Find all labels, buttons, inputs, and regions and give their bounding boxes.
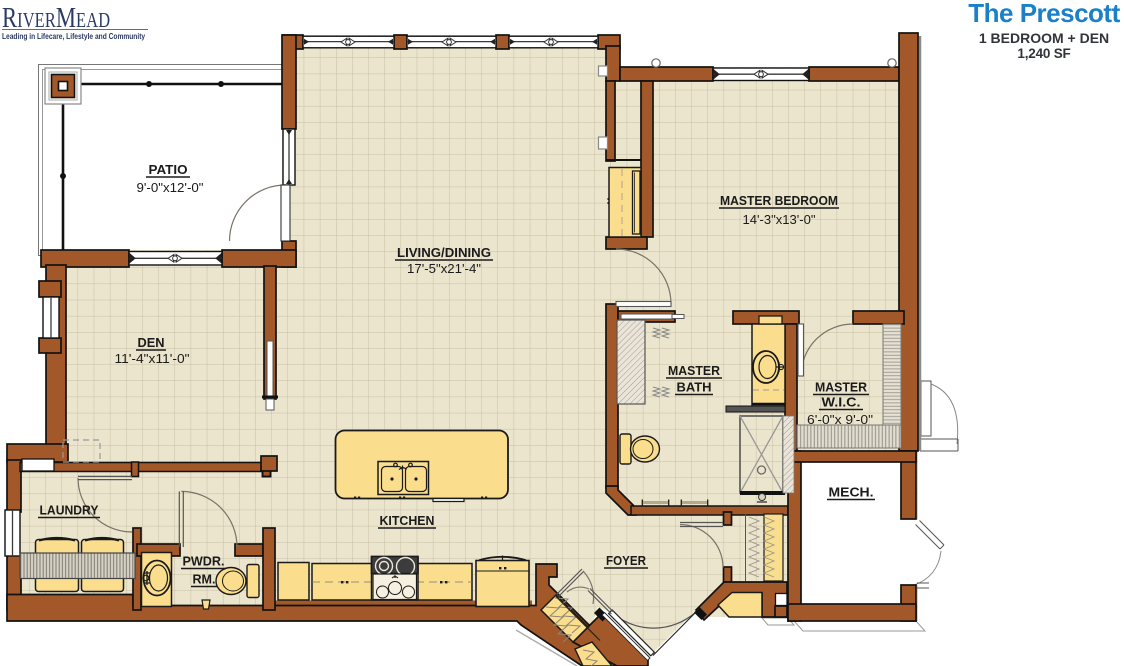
svg-text:FOYER: FOYER — [606, 553, 647, 568]
svg-text:KITCHEN: KITCHEN — [380, 513, 435, 528]
svg-text:BATH: BATH — [677, 380, 712, 395]
svg-text:MECH.: MECH. — [829, 485, 874, 500]
svg-text:LIVING/DINING: LIVING/DINING — [397, 245, 491, 260]
svg-text:14'-3"x13'-0": 14'-3"x13'-0" — [743, 212, 816, 227]
svg-text:MASTER: MASTER — [668, 363, 721, 378]
svg-text:17'-5"x21'-4": 17'-5"x21'-4" — [407, 261, 481, 276]
svg-text:9'-0"x12'-0": 9'-0"x12'-0" — [137, 180, 204, 195]
svg-text:6'-0"x 9'-0": 6'-0"x 9'-0" — [807, 412, 873, 427]
svg-text:PWDR.: PWDR. — [183, 554, 225, 569]
svg-text:W.I.C.: W.I.C. — [822, 395, 861, 410]
svg-text:11'-4"x11'-0": 11'-4"x11'-0" — [115, 351, 190, 366]
svg-text:MASTER: MASTER — [815, 380, 868, 395]
svg-text:MASTER BEDROOM: MASTER BEDROOM — [720, 193, 838, 208]
svg-text:RM.: RM. — [193, 572, 216, 587]
svg-text:DEN: DEN — [138, 335, 165, 350]
svg-text:LAUNDRY: LAUNDRY — [40, 503, 99, 518]
svg-text:PATIO: PATIO — [149, 162, 188, 177]
